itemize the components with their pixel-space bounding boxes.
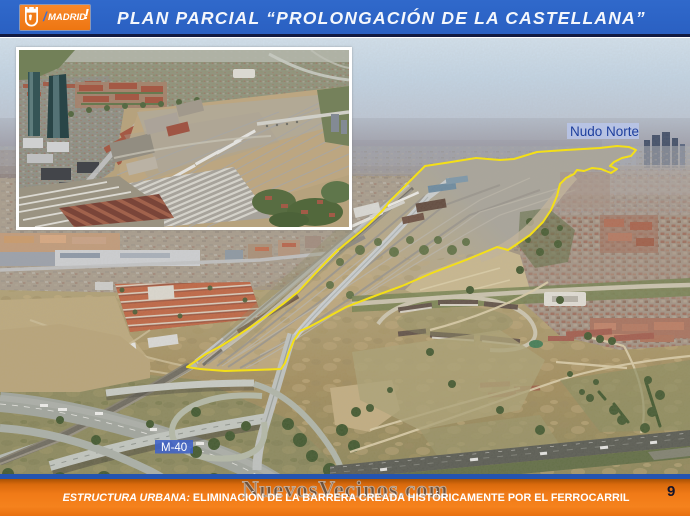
svg-text:Nudo Norte: Nudo Norte <box>570 124 639 139</box>
svg-text:M-40: M-40 <box>161 442 187 454</box>
